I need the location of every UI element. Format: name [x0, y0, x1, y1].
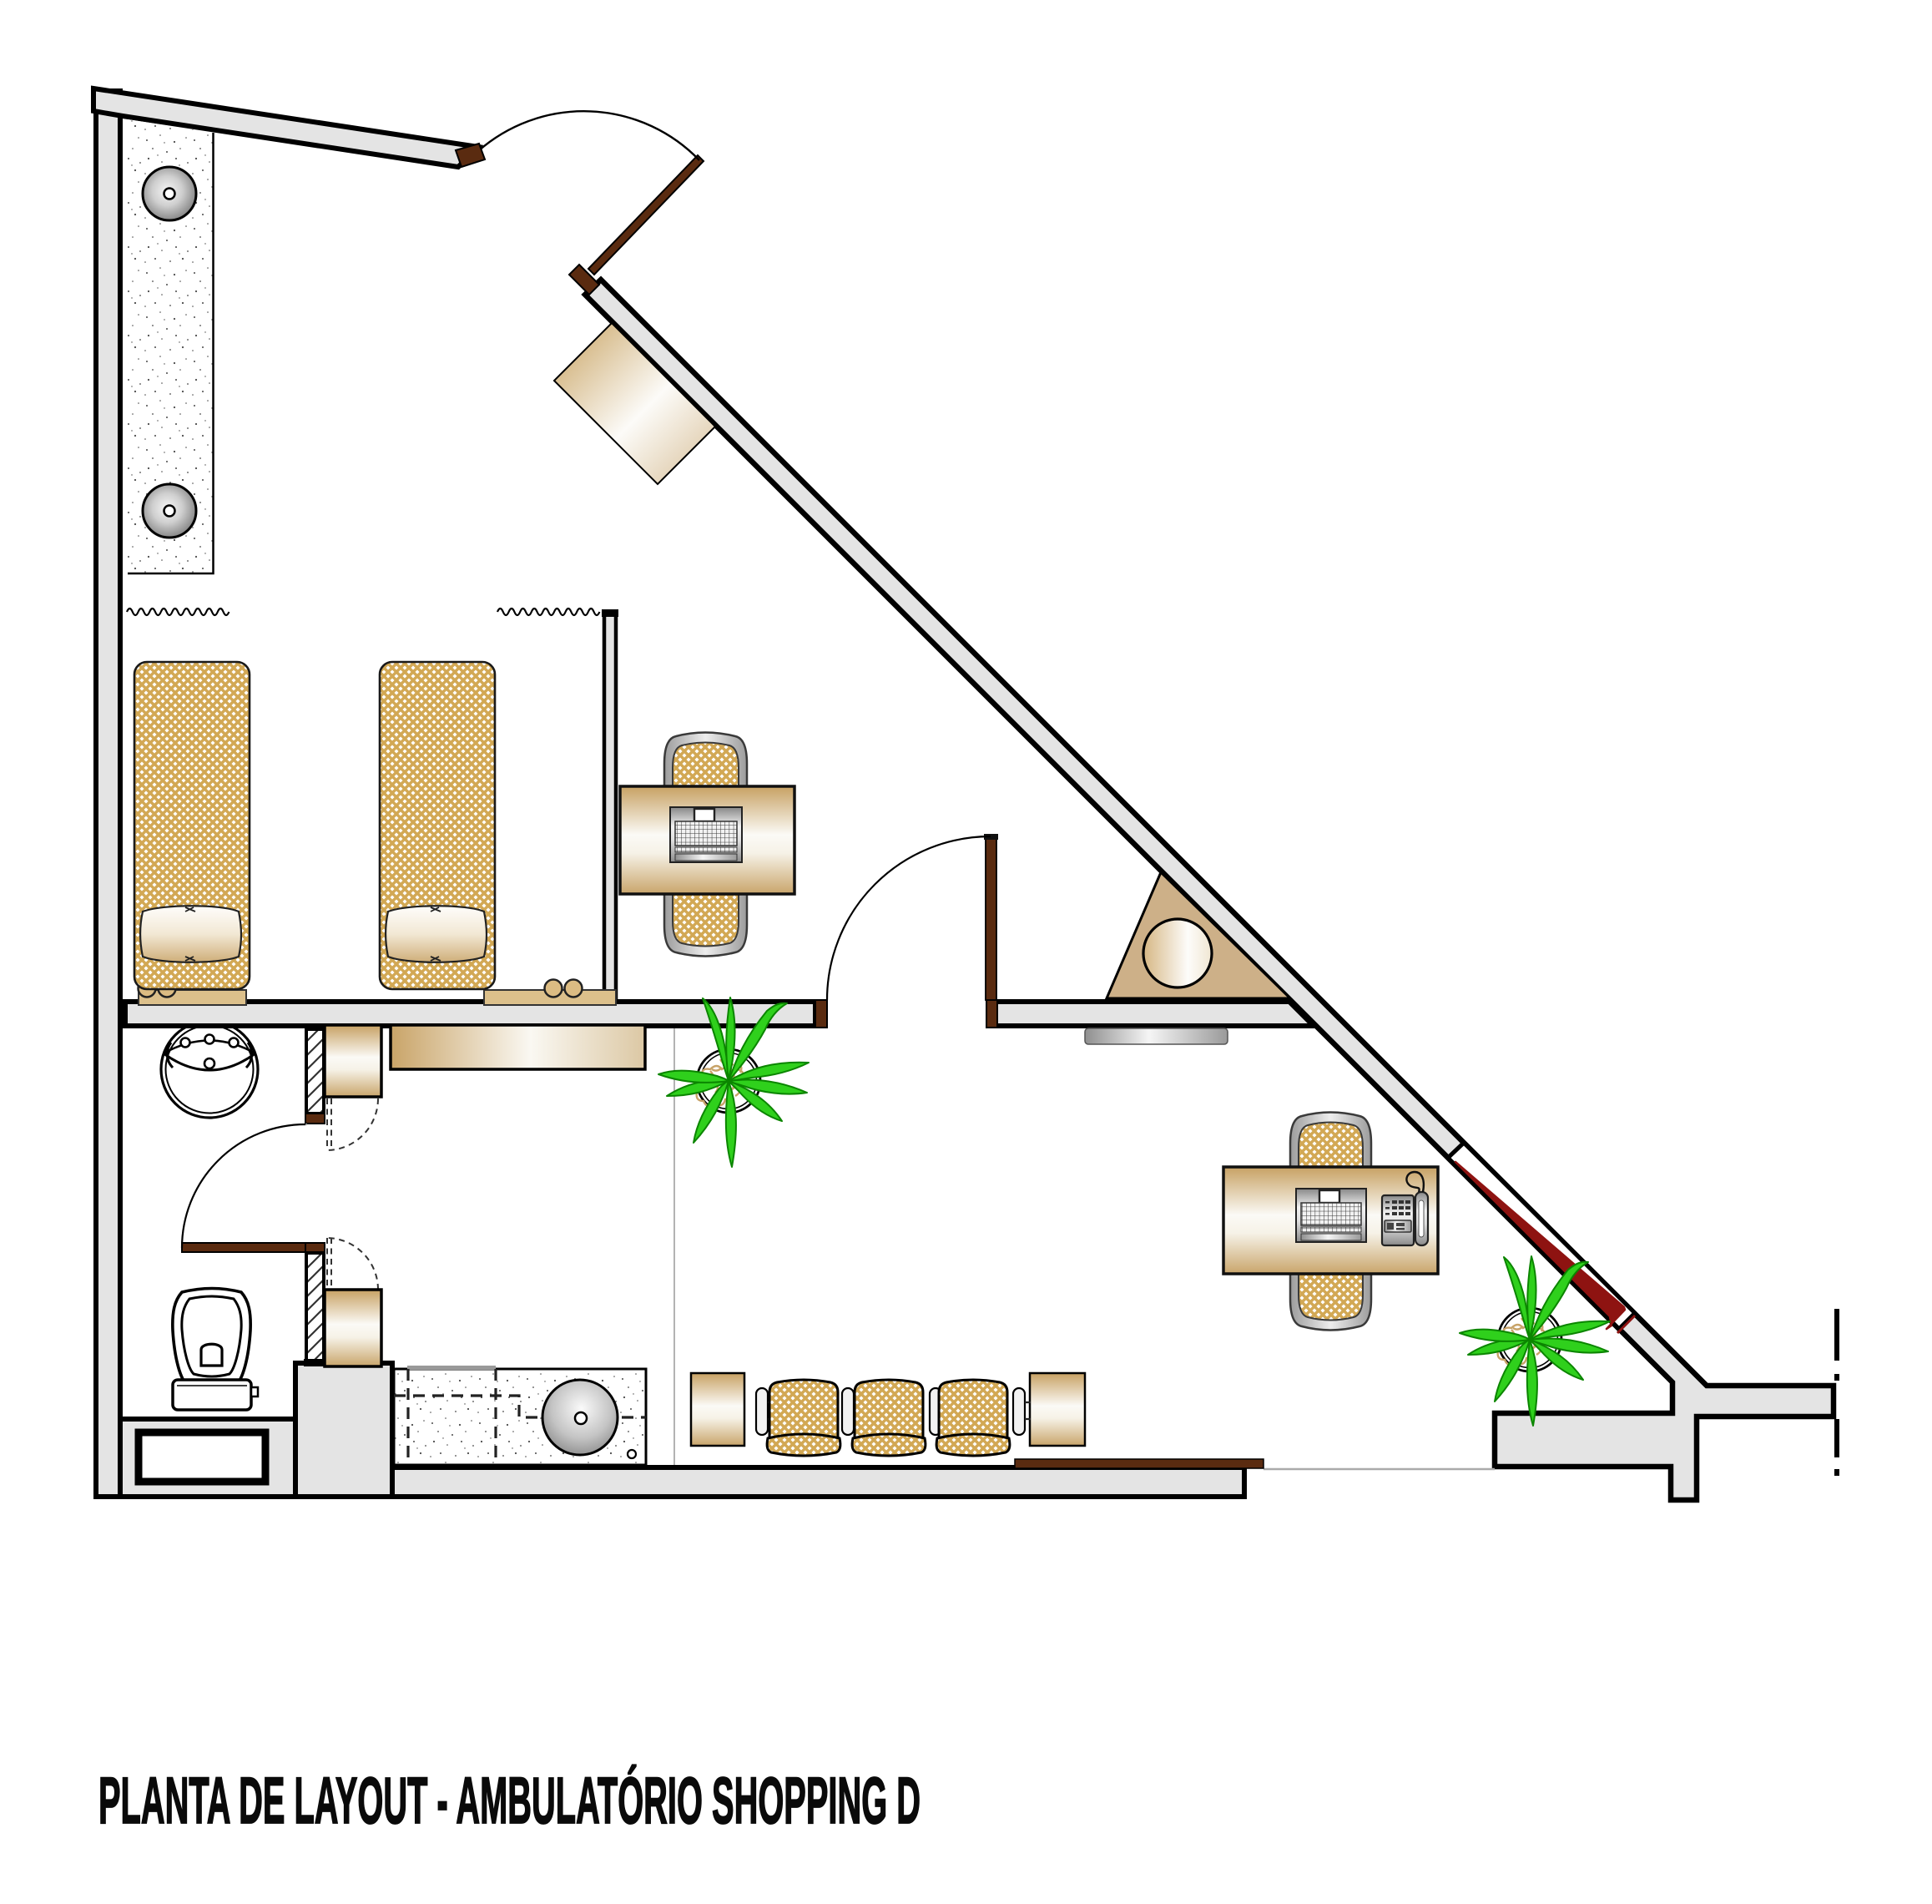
svg-text:PLANTA DE LAYOUT - AMBULATÓRIO: PLANTA DE LAYOUT - AMBULATÓRIO SHOPPING … [98, 1763, 921, 1837]
